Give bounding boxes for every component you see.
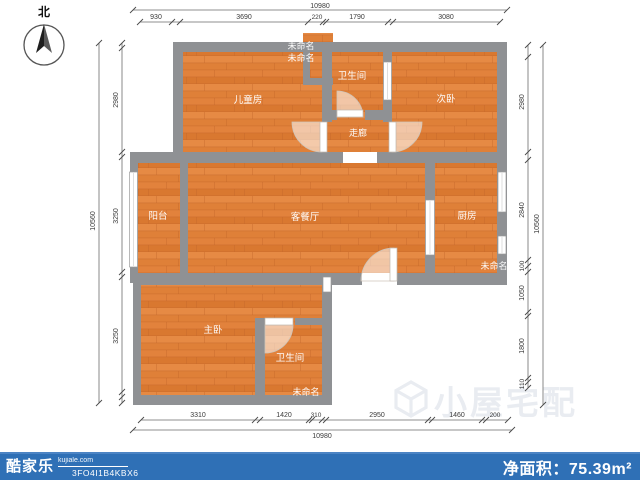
dim-bottom-1: 1420	[276, 412, 292, 419]
watermark: 小屋宅配	[396, 382, 578, 421]
wall-top	[173, 42, 507, 52]
dim-left-total: 10560	[90, 211, 97, 231]
floorplan-viewer: 儿童房 卫生间 次卧 走廊 阳台 客餐厅 厨房 主卧 卫生间 未命名 未命名 未…	[0, 0, 640, 480]
room-label-kitchen: 厨房	[457, 210, 476, 222]
door-leaf-bathroom-bottom	[265, 318, 293, 325]
dim-bottom-4: 1460	[449, 412, 465, 419]
room-label-master-bedroom: 主卧	[203, 324, 223, 336]
dim-line-bottom	[133, 420, 512, 430]
floor-bottom-band	[141, 285, 322, 395]
dim-left-1: 3250	[113, 208, 120, 224]
brand-meta: kujiale.com 3FO4I1B4KBX6	[58, 457, 138, 478]
plan-code: 3FO4I1B4KBX6	[72, 468, 138, 478]
floorplan-canvas: 儿童房 卫生间 次卧 走廊 阳台 客餐厅 厨房 主卧 卫生间 未命名 未命名 未…	[0, 0, 640, 450]
compass-north-label: 北	[38, 4, 50, 19]
footer-bar: 酷家乐 kujiale.com 3FO4I1B4KBX6 净面积：75.39m²	[0, 452, 640, 480]
room-label-childrens-room: 儿童房	[234, 94, 263, 106]
dim-right-2: 100	[519, 260, 526, 271]
wall-niche-h	[303, 78, 333, 85]
door-leaf-secondary-bedroom	[389, 122, 396, 152]
dim-top-3: 1790	[349, 14, 365, 21]
dim-bottom-5: 200	[490, 412, 501, 419]
door-leaf-childrens	[320, 122, 327, 152]
compass: 北	[24, 4, 64, 65]
dim-right-5: 110	[519, 378, 526, 389]
dim-right-1: 2840	[519, 202, 526, 218]
room-label-unnamed-top-2: 未命名	[287, 52, 314, 63]
room-label-secondary-bedroom: 次卧	[436, 93, 456, 105]
dim-bottom-2: 310	[311, 412, 322, 419]
compass-needle-right	[44, 24, 52, 53]
wall-bath-bottom-a	[332, 110, 337, 120]
room-label-unnamed-bottom: 未命名	[292, 386, 319, 397]
wall-bath-bottom-b	[365, 110, 392, 120]
door-strip-hall	[323, 277, 331, 292]
room-label-corridor: 走廊	[349, 127, 367, 138]
wall-bath2-top	[295, 318, 332, 325]
ticks-left	[96, 40, 125, 406]
brand-logo: 酷家乐	[6, 455, 54, 479]
wall-bath2-left	[255, 318, 265, 405]
dim-right-0: 2980	[519, 94, 526, 110]
net-area-label: 净面积：	[503, 461, 569, 478]
wall-h1-right	[377, 152, 497, 163]
door-leaf-bathroom-top	[337, 110, 363, 117]
door-leaf-entrance	[390, 248, 397, 281]
room-label-balcony: 阳台	[148, 210, 167, 222]
dim-right-total: 10560	[534, 214, 541, 234]
dim-bottom-3: 2950	[369, 412, 385, 419]
dim-right-3: 1050	[519, 285, 526, 301]
room-label-living-dining: 客餐厅	[291, 211, 320, 223]
dim-top-0: 930	[150, 14, 162, 21]
dim-right-4: 1800	[519, 338, 526, 354]
brand-domain: kujiale.com	[58, 457, 138, 465]
dim-top-2: 220	[312, 14, 323, 21]
room-label-unnamed-right: 未命名	[480, 260, 507, 271]
wall-left-upper	[173, 42, 183, 152]
brand-block: 酷家乐 kujiale.com 3FO4I1B4KBX6	[6, 455, 139, 479]
dim-top-total: 10980	[310, 3, 330, 10]
brand-divider	[58, 466, 128, 467]
wall-left-lower	[133, 275, 141, 405]
wall-right-lower	[322, 275, 332, 405]
watermark-cube-icon	[396, 382, 426, 416]
room-label-bathroom-bottom: 卫生间	[276, 352, 305, 364]
dim-top-1: 3690	[236, 14, 252, 21]
dim-left-2: 3250	[113, 328, 120, 344]
net-area: 净面积：75.39m²	[503, 455, 632, 479]
wall-h1-left	[130, 152, 343, 163]
net-area-value: 75.39	[569, 461, 612, 478]
dim-top-4: 3080	[438, 14, 454, 21]
wall-childrens-right	[322, 52, 332, 122]
wall-h2-right	[397, 273, 507, 285]
wall-balcony-right	[180, 163, 188, 273]
dim-left-0: 2980	[113, 92, 120, 108]
room-label-unnamed-top-1: 未命名	[287, 40, 314, 51]
dim-bottom-total: 10980	[312, 433, 332, 440]
compass-needle-left	[36, 24, 44, 53]
net-area-unit: m²	[611, 461, 632, 478]
room-label-bathroom-top: 卫生间	[338, 70, 367, 82]
dim-bottom-0: 3310	[190, 412, 206, 419]
